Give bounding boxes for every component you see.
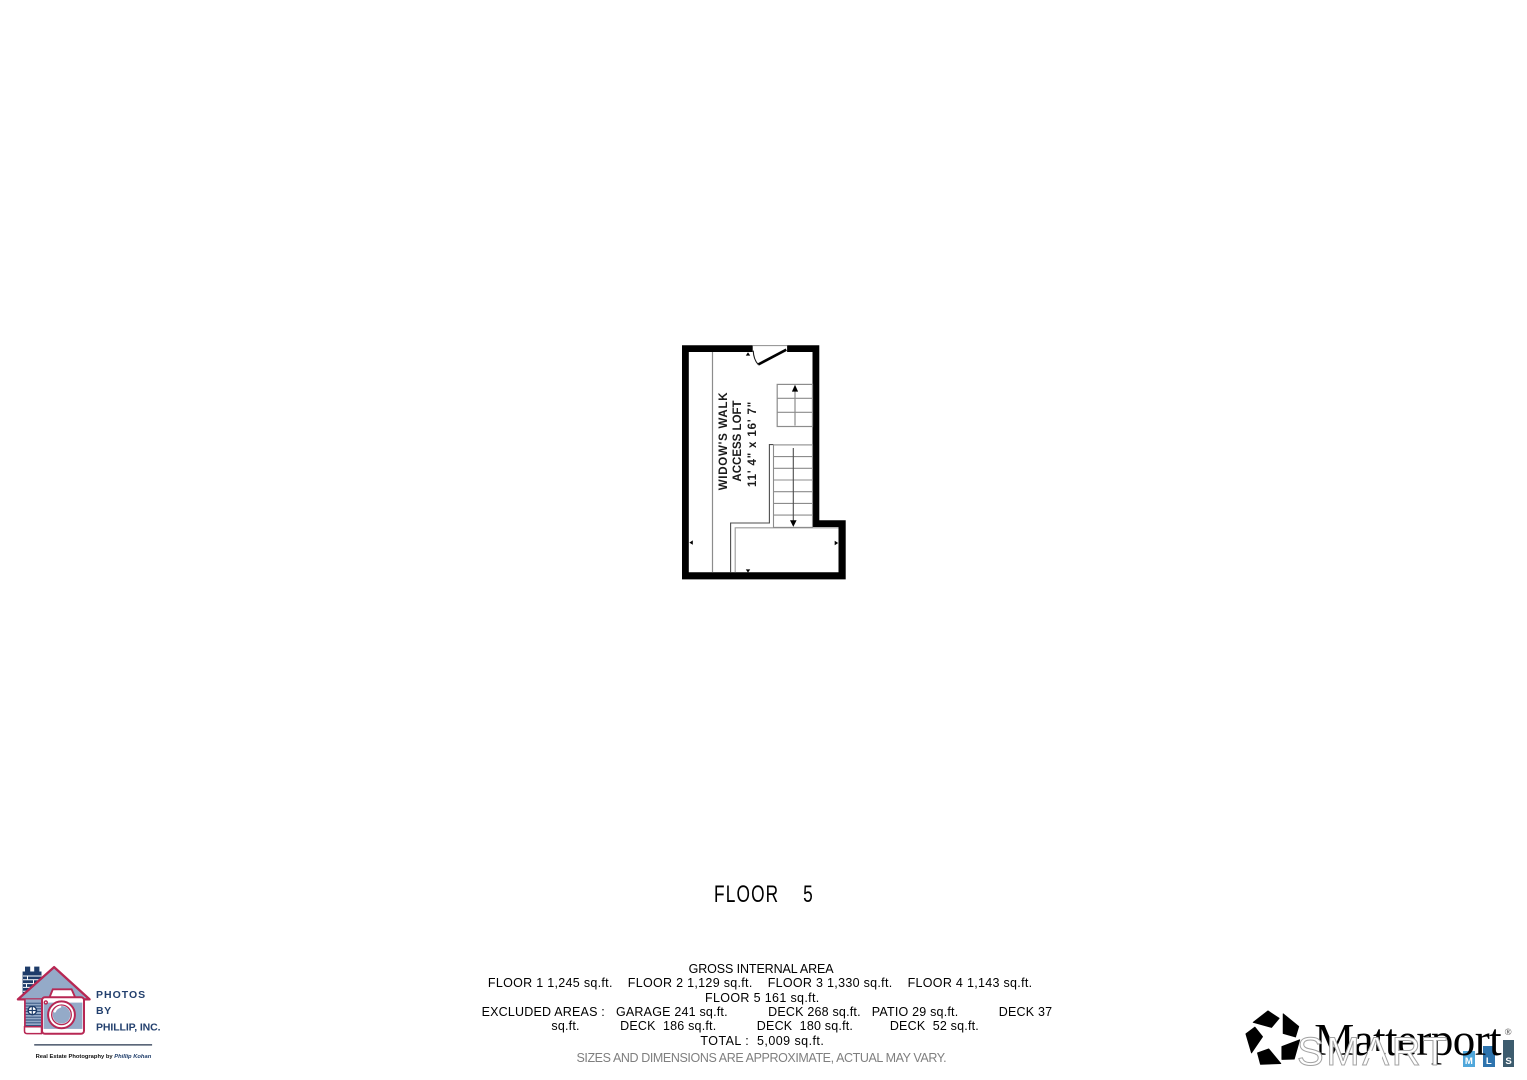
svg-text:Real Estate Photography by Phi: Real Estate Photography by Phillip Kohan [36, 1054, 152, 1060]
svg-text:PHOTOS: PHOTOS [96, 989, 146, 1001]
svg-text:PHILLIP, INC.: PHILLIP, INC. [96, 1021, 161, 1033]
svg-text:BY: BY [96, 1005, 112, 1017]
